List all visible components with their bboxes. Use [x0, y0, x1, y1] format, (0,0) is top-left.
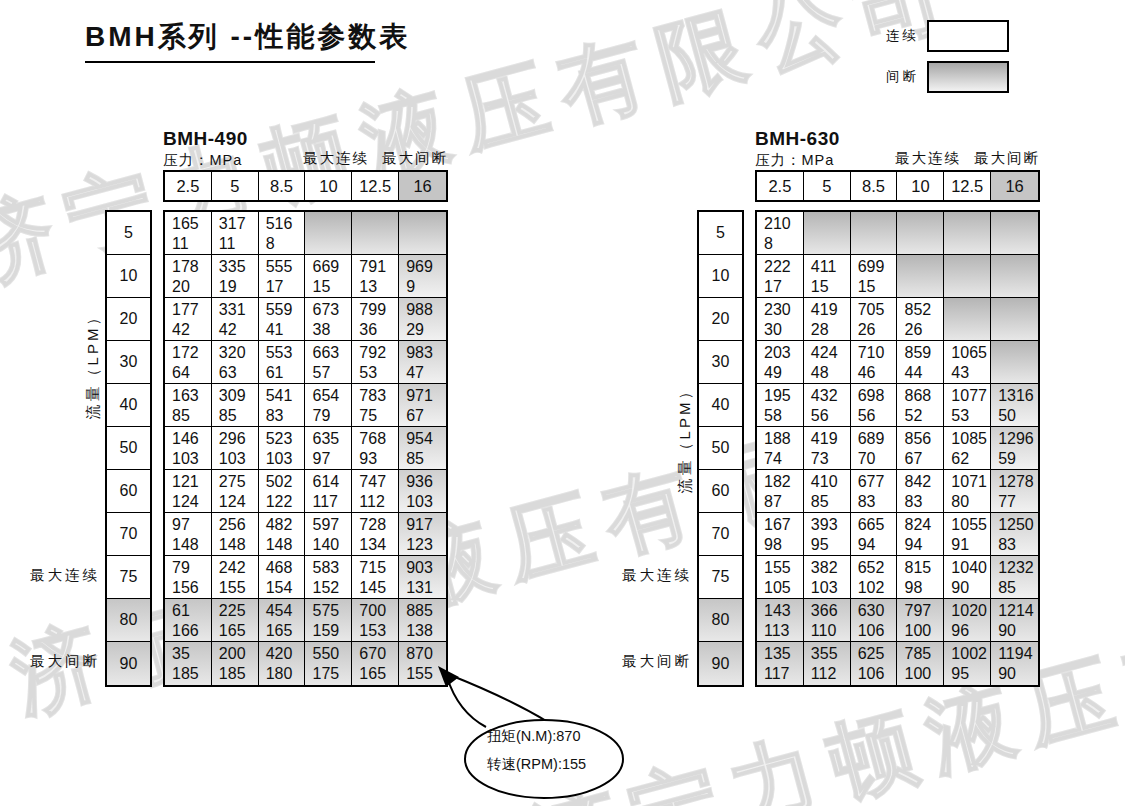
pressure-header-cell: 5: [212, 172, 259, 200]
torque-value: 885: [406, 601, 446, 621]
data-cell: 41973: [804, 427, 851, 470]
speed-value: 165: [266, 621, 305, 641]
speed-value: 148: [266, 535, 305, 555]
torque-value: 815: [904, 558, 943, 578]
data-cell: 79113: [352, 255, 399, 298]
data-cell: 242155: [212, 556, 259, 599]
torque-value: 1296: [998, 429, 1038, 449]
data-cell: 143113: [757, 599, 804, 642]
torque-value: 432: [811, 386, 850, 406]
speed-value: 124: [219, 492, 258, 512]
legend-row-intermittent: 间断: [886, 61, 1009, 93]
data-cell: [991, 255, 1038, 298]
torque-value: 917: [406, 515, 446, 535]
data-cell: 225165: [212, 599, 259, 642]
data-cell: 76893: [352, 427, 399, 470]
pressure-header-cell: 16: [991, 172, 1038, 200]
data-cell: 20349: [757, 341, 804, 384]
data-cell: 55941: [259, 298, 306, 341]
data-cell: 917123: [399, 513, 446, 556]
flow-header-cell: 50: [699, 427, 742, 470]
torque-value: 210: [764, 214, 803, 234]
data-cell: 382103: [804, 556, 851, 599]
data-cell: 30985: [212, 384, 259, 427]
flow-header-cell: 75: [107, 556, 150, 599]
data-cell: 31711: [212, 212, 259, 255]
legend-row-continuous: 连续: [886, 20, 1009, 52]
speed-value: 52: [904, 406, 943, 426]
data-cell: 747112: [352, 470, 399, 513]
torque-value: 630: [858, 601, 897, 621]
torque-value: 523: [266, 429, 305, 449]
torque-value: 698: [858, 386, 897, 406]
data-cell: 71046: [851, 341, 898, 384]
speed-value: 103: [266, 449, 305, 469]
data-cell: 123285: [991, 556, 1038, 599]
speed-value: 83: [904, 492, 943, 512]
torque-value: 797: [904, 601, 943, 621]
speed-value: 91: [951, 535, 990, 555]
torque-value: 983: [406, 343, 446, 363]
speed-value: 98: [764, 535, 803, 555]
torque-value: 1020: [951, 601, 990, 621]
speed-value: 63: [219, 363, 258, 383]
speed-value: 48: [811, 363, 850, 383]
pressure-header-cell: 8.5: [851, 172, 898, 200]
flow-header-cell: 90: [699, 642, 742, 685]
speed-value: 185: [172, 664, 211, 684]
torque-value: 410: [811, 472, 850, 492]
flow-header-cell: 40: [107, 384, 150, 427]
speed-value: 85: [172, 406, 211, 426]
speed-value: 8: [266, 234, 305, 254]
data-cell: 55361: [259, 341, 306, 384]
callout-arrowhead-icon: [438, 666, 459, 687]
torque-value: 296: [219, 429, 258, 449]
pressure-header-cell: 10: [897, 172, 944, 200]
speed-value: 53: [359, 363, 398, 383]
flow-header-cell: 5: [107, 212, 150, 255]
torque-value: 652: [858, 558, 897, 578]
speed-value: 112: [811, 664, 850, 684]
speed-value: 152: [312, 578, 351, 598]
pressure-header-cell: 2.5: [757, 172, 804, 200]
pressure-header-row: 2.558.51012.516: [163, 170, 448, 202]
data-cell: 102096: [944, 599, 991, 642]
flow-header-cell: 10: [699, 255, 742, 298]
speed-value: 67: [904, 449, 943, 469]
speed-value: 124: [172, 492, 211, 512]
speed-value: 98: [904, 578, 943, 598]
table-title: BMH-490: [163, 128, 248, 150]
speed-value: 57: [312, 363, 351, 383]
torque-value: 903: [406, 558, 446, 578]
speed-value: 56: [811, 406, 850, 426]
speed-value: 113: [764, 621, 803, 641]
speed-value: 148: [219, 535, 258, 555]
torque-value: 1065: [951, 343, 990, 363]
torque-value: 225: [219, 601, 258, 621]
data-cell: 885138: [399, 599, 446, 642]
speed-value: 185: [219, 664, 258, 684]
data-cell: 17264: [165, 341, 212, 384]
speed-value: 165: [219, 621, 258, 641]
data-cell: 107180: [944, 470, 991, 513]
flow-header-cell: 90: [107, 642, 150, 685]
speed-value: 15: [858, 277, 897, 297]
data-cell: 105591: [944, 513, 991, 556]
data-cell: 69856: [851, 384, 898, 427]
data-cell: 85944: [897, 341, 944, 384]
data-cell: 550175: [305, 642, 352, 685]
speed-value: 83: [266, 406, 305, 426]
speed-value: 154: [266, 578, 305, 598]
flow-header-cell: 30: [699, 341, 742, 384]
data-cell: 625106: [851, 642, 898, 685]
torque-value: 1194: [998, 644, 1038, 664]
flow-axis-label: 流量（LPM）: [676, 328, 695, 548]
data-cell: 121490: [991, 599, 1038, 642]
torque-value: 275: [219, 472, 258, 492]
torque-value: 792: [359, 343, 398, 363]
speed-value: 9: [406, 277, 446, 297]
torque-value: 135: [764, 644, 803, 664]
data-cell: [944, 212, 991, 255]
speed-value: 74: [764, 449, 803, 469]
data-cell: 18287: [757, 470, 804, 513]
data-cell: 9699: [399, 255, 446, 298]
torque-value: 242: [219, 558, 258, 578]
speed-value: 87: [764, 492, 803, 512]
speed-value: 103: [219, 449, 258, 469]
data-cell: 22217: [757, 255, 804, 298]
flow-header-cell: 5: [699, 212, 742, 255]
callout-text: 扭矩(N.M):870 转速(RPM):155: [487, 727, 586, 773]
speed-value: 85: [406, 449, 446, 469]
speed-value: 85: [219, 406, 258, 426]
data-cell: [851, 212, 898, 255]
speed-value: 58: [764, 406, 803, 426]
speed-value: 47: [406, 363, 446, 383]
table-bmh-490: BMH-490 压力：MPa 最大连续 最大间断 2.558.51012.516…: [105, 128, 448, 728]
speed-value: 156: [172, 578, 211, 598]
data-cell: 575159: [305, 599, 352, 642]
speed-value: 49: [764, 363, 803, 383]
speed-value: 94: [858, 535, 897, 555]
speed-value: 94: [904, 535, 943, 555]
speed-value: 11: [219, 234, 258, 254]
torque-value: 97: [172, 515, 211, 535]
data-cell: 125083: [991, 513, 1038, 556]
speed-value: 175: [312, 664, 351, 684]
data-cell: 728134: [352, 513, 399, 556]
speed-value: 70: [858, 449, 897, 469]
torque-value: 320: [219, 343, 258, 363]
torque-value: 61: [172, 601, 211, 621]
speed-value: 36: [359, 320, 398, 340]
speed-value: 123: [406, 535, 446, 555]
table-bmh-630: BMH-630 压力：MPa 最大连续 最大间断 2.558.51012.516…: [697, 128, 1040, 728]
speed-value: 50: [998, 406, 1038, 426]
data-cell: 119490: [991, 642, 1038, 685]
torque-value: 971: [406, 386, 446, 406]
speed-value: 103: [172, 449, 211, 469]
torque-value: 550: [312, 644, 351, 664]
flow-header-cell: 60: [107, 470, 150, 513]
flow-header-cell: 20: [699, 298, 742, 341]
speed-value: 83: [858, 492, 897, 512]
speed-value: 85: [811, 492, 850, 512]
data-cell: 18874: [757, 427, 804, 470]
speed-value: 79: [312, 406, 351, 426]
torque-value: 502: [266, 472, 305, 492]
data-cell: 41928: [804, 298, 851, 341]
data-cell: 81598: [897, 556, 944, 599]
data-cell: 597140: [305, 513, 352, 556]
speed-value: 103: [406, 492, 446, 512]
torque-value: 859: [904, 343, 943, 363]
speed-value: 97: [312, 449, 351, 469]
torque-value: 411: [811, 257, 850, 277]
torque-value: 665: [858, 515, 897, 535]
data-grid: 2108222174111569915230304192870526852262…: [755, 210, 1040, 687]
data-cell: 275124: [212, 470, 259, 513]
data-cell: 43256: [804, 384, 851, 427]
pressure-unit-label: 压力：MPa: [163, 151, 242, 170]
speed-value: 41: [266, 320, 305, 340]
speed-value: 117: [312, 492, 351, 512]
torque-value: 1232: [998, 558, 1038, 578]
data-cell: 85226: [897, 298, 944, 341]
data-cell: 67783: [851, 470, 898, 513]
torque-value: 614: [312, 472, 351, 492]
data-cell: 523103: [259, 427, 306, 470]
data-cell: [991, 212, 1038, 255]
speed-value: 38: [312, 320, 351, 340]
torque-value: 178: [172, 257, 211, 277]
torque-value: 1002: [951, 644, 990, 664]
data-cell: 66915: [305, 255, 352, 298]
speed-value: 96: [951, 621, 990, 641]
max-intermittent-header-label: 最大间断: [974, 149, 1040, 168]
torque-value: 747: [359, 472, 398, 492]
torque-value: 331: [219, 300, 258, 320]
torque-value: 222: [764, 257, 803, 277]
data-cell: 155105: [757, 556, 804, 599]
torque-value: 420: [266, 644, 305, 664]
torque-value: 1077: [951, 386, 990, 406]
data-cell: [352, 212, 399, 255]
flow-header-cell: 40: [699, 384, 742, 427]
torque-value: 182: [764, 472, 803, 492]
data-cell: 97167: [399, 384, 446, 427]
flow-header-cell: 30: [107, 341, 150, 384]
torque-value: 382: [811, 558, 850, 578]
torque-value: 1085: [951, 429, 990, 449]
torque-value: 541: [266, 386, 305, 406]
callout-speed-line: 转速(RPM):155: [487, 755, 586, 773]
speed-value: 17: [764, 277, 803, 297]
data-cell: [305, 212, 352, 255]
table-title: BMH-630: [755, 128, 840, 150]
max-intermittent-row-label: 最大间断: [30, 652, 100, 671]
speed-value: 8: [764, 234, 803, 254]
speed-value: 148: [172, 535, 211, 555]
flow-header-cell: 10: [107, 255, 150, 298]
torque-value: 335: [219, 257, 258, 277]
max-continuous-row-label: 最大连续: [622, 566, 692, 585]
torque-value: 700: [359, 601, 398, 621]
data-cell: [897, 212, 944, 255]
data-cell: 785100: [897, 642, 944, 685]
torque-value: 1278: [998, 472, 1038, 492]
speed-value: 138: [406, 621, 446, 641]
data-cell: 355112: [804, 642, 851, 685]
data-cell: 54183: [259, 384, 306, 427]
torque-value: 824: [904, 515, 943, 535]
torque-value: 35: [172, 644, 211, 664]
speed-value: 103: [811, 578, 850, 598]
data-cell: 670165: [352, 642, 399, 685]
data-cell: 19558: [757, 384, 804, 427]
data-cell: 106543: [944, 341, 991, 384]
speed-value: 165: [359, 664, 398, 684]
torque-value: 673: [312, 300, 351, 320]
torque-value: 783: [359, 386, 398, 406]
data-cell: [944, 255, 991, 298]
speed-value: 64: [172, 363, 211, 383]
speed-value: 29: [406, 320, 446, 340]
data-cell: [804, 212, 851, 255]
torque-value: 419: [811, 300, 850, 320]
data-cell: 5168: [259, 212, 306, 255]
data-cell: [399, 212, 446, 255]
data-cell: 95485: [399, 427, 446, 470]
data-cell: 16511: [165, 212, 212, 255]
torque-value: 424: [811, 343, 850, 363]
pressure-header-cell: 10: [305, 172, 352, 200]
data-cell: 79936: [352, 298, 399, 341]
torque-value: 468: [266, 558, 305, 578]
flow-header-cell: 80: [107, 599, 150, 642]
data-cell: 146103: [165, 427, 212, 470]
speed-value: 112: [359, 492, 398, 512]
data-cell: 70526: [851, 298, 898, 341]
data-cell: 366110: [804, 599, 851, 642]
torque-value: 852: [904, 300, 943, 320]
pressure-unit-label: 压力：MPa: [755, 151, 834, 170]
torque-value: 715: [359, 558, 398, 578]
data-cell: 652102: [851, 556, 898, 599]
data-cell: 78375: [352, 384, 399, 427]
speed-value: 77: [998, 492, 1038, 512]
data-cell: 630106: [851, 599, 898, 642]
speed-value: 42: [172, 320, 211, 340]
speed-value: 75: [359, 406, 398, 426]
legend: 连续 间断: [886, 20, 1009, 93]
speed-value: 100: [904, 664, 943, 684]
data-cell: 700153: [352, 599, 399, 642]
speed-value: 83: [998, 535, 1038, 555]
torque-value: 1316: [998, 386, 1038, 406]
speed-value: 105: [764, 578, 803, 598]
legend-continuous-swatch: [927, 20, 1009, 52]
data-cell: 296103: [212, 427, 259, 470]
data-cell: 936103: [399, 470, 446, 513]
legend-continuous-label: 连续: [886, 27, 919, 45]
legend-intermittent-swatch: [927, 61, 1009, 93]
torque-value: 785: [904, 644, 943, 664]
data-cell: 903131: [399, 556, 446, 599]
max-continuous-row-label: 最大连续: [30, 566, 100, 585]
data-cell: 17742: [165, 298, 212, 341]
torque-value: 597: [312, 515, 351, 535]
data-cell: 107753: [944, 384, 991, 427]
data-cell: 79156: [165, 556, 212, 599]
torque-value: 583: [312, 558, 351, 578]
torque-value: 165: [172, 214, 211, 234]
pressure-header-row: 2.558.51012.516: [755, 170, 1040, 202]
data-cell: 82494: [897, 513, 944, 556]
torque-value: 167: [764, 515, 803, 535]
data-cell: 85667: [897, 427, 944, 470]
speed-value: 19: [219, 277, 258, 297]
torque-value: 625: [858, 644, 897, 664]
max-continuous-header-label: 最大连续: [303, 149, 369, 168]
data-cell: 33142: [212, 298, 259, 341]
speed-value: 90: [998, 621, 1038, 641]
data-cell: [991, 298, 1038, 341]
torque-value: 172: [172, 343, 211, 363]
torque-value: 482: [266, 515, 305, 535]
pressure-header-cell: 2.5: [165, 172, 212, 200]
speed-value: 140: [312, 535, 351, 555]
data-cell: 129659: [991, 427, 1038, 470]
speed-value: 131: [406, 578, 446, 598]
torque-value: 1055: [951, 515, 990, 535]
speed-value: 90: [951, 578, 990, 598]
callout-torque-line: 扭矩(N.M):870: [487, 727, 586, 745]
speed-value: 73: [811, 449, 850, 469]
torque-value: 1040: [951, 558, 990, 578]
title-underline: [85, 61, 375, 63]
flow-column: 510203040506070758090: [105, 210, 152, 687]
torque-value: 669: [312, 257, 351, 277]
torque-value: 1214: [998, 601, 1038, 621]
torque-value: 663: [312, 343, 351, 363]
speed-value: 110: [811, 621, 850, 641]
data-cell: 41085: [804, 470, 851, 513]
data-cell: 98829: [399, 298, 446, 341]
data-cell: 35185: [165, 642, 212, 685]
torque-value: 768: [359, 429, 398, 449]
legend-intermittent-label: 间断: [886, 68, 919, 86]
data-cell: 420180: [259, 642, 306, 685]
torque-value: 143: [764, 601, 803, 621]
data-cell: 55517: [259, 255, 306, 298]
data-cell: 121124: [165, 470, 212, 513]
torque-value: 689: [858, 429, 897, 449]
torque-value: 699: [858, 257, 897, 277]
speed-value: 28: [811, 320, 850, 340]
data-cell: 65479: [305, 384, 352, 427]
data-cell: 16385: [165, 384, 212, 427]
data-cell: 97148: [165, 513, 212, 556]
flow-header-cell: 20: [107, 298, 150, 341]
data-cell: 797100: [897, 599, 944, 642]
data-cell: 482148: [259, 513, 306, 556]
torque-value: 868: [904, 386, 943, 406]
